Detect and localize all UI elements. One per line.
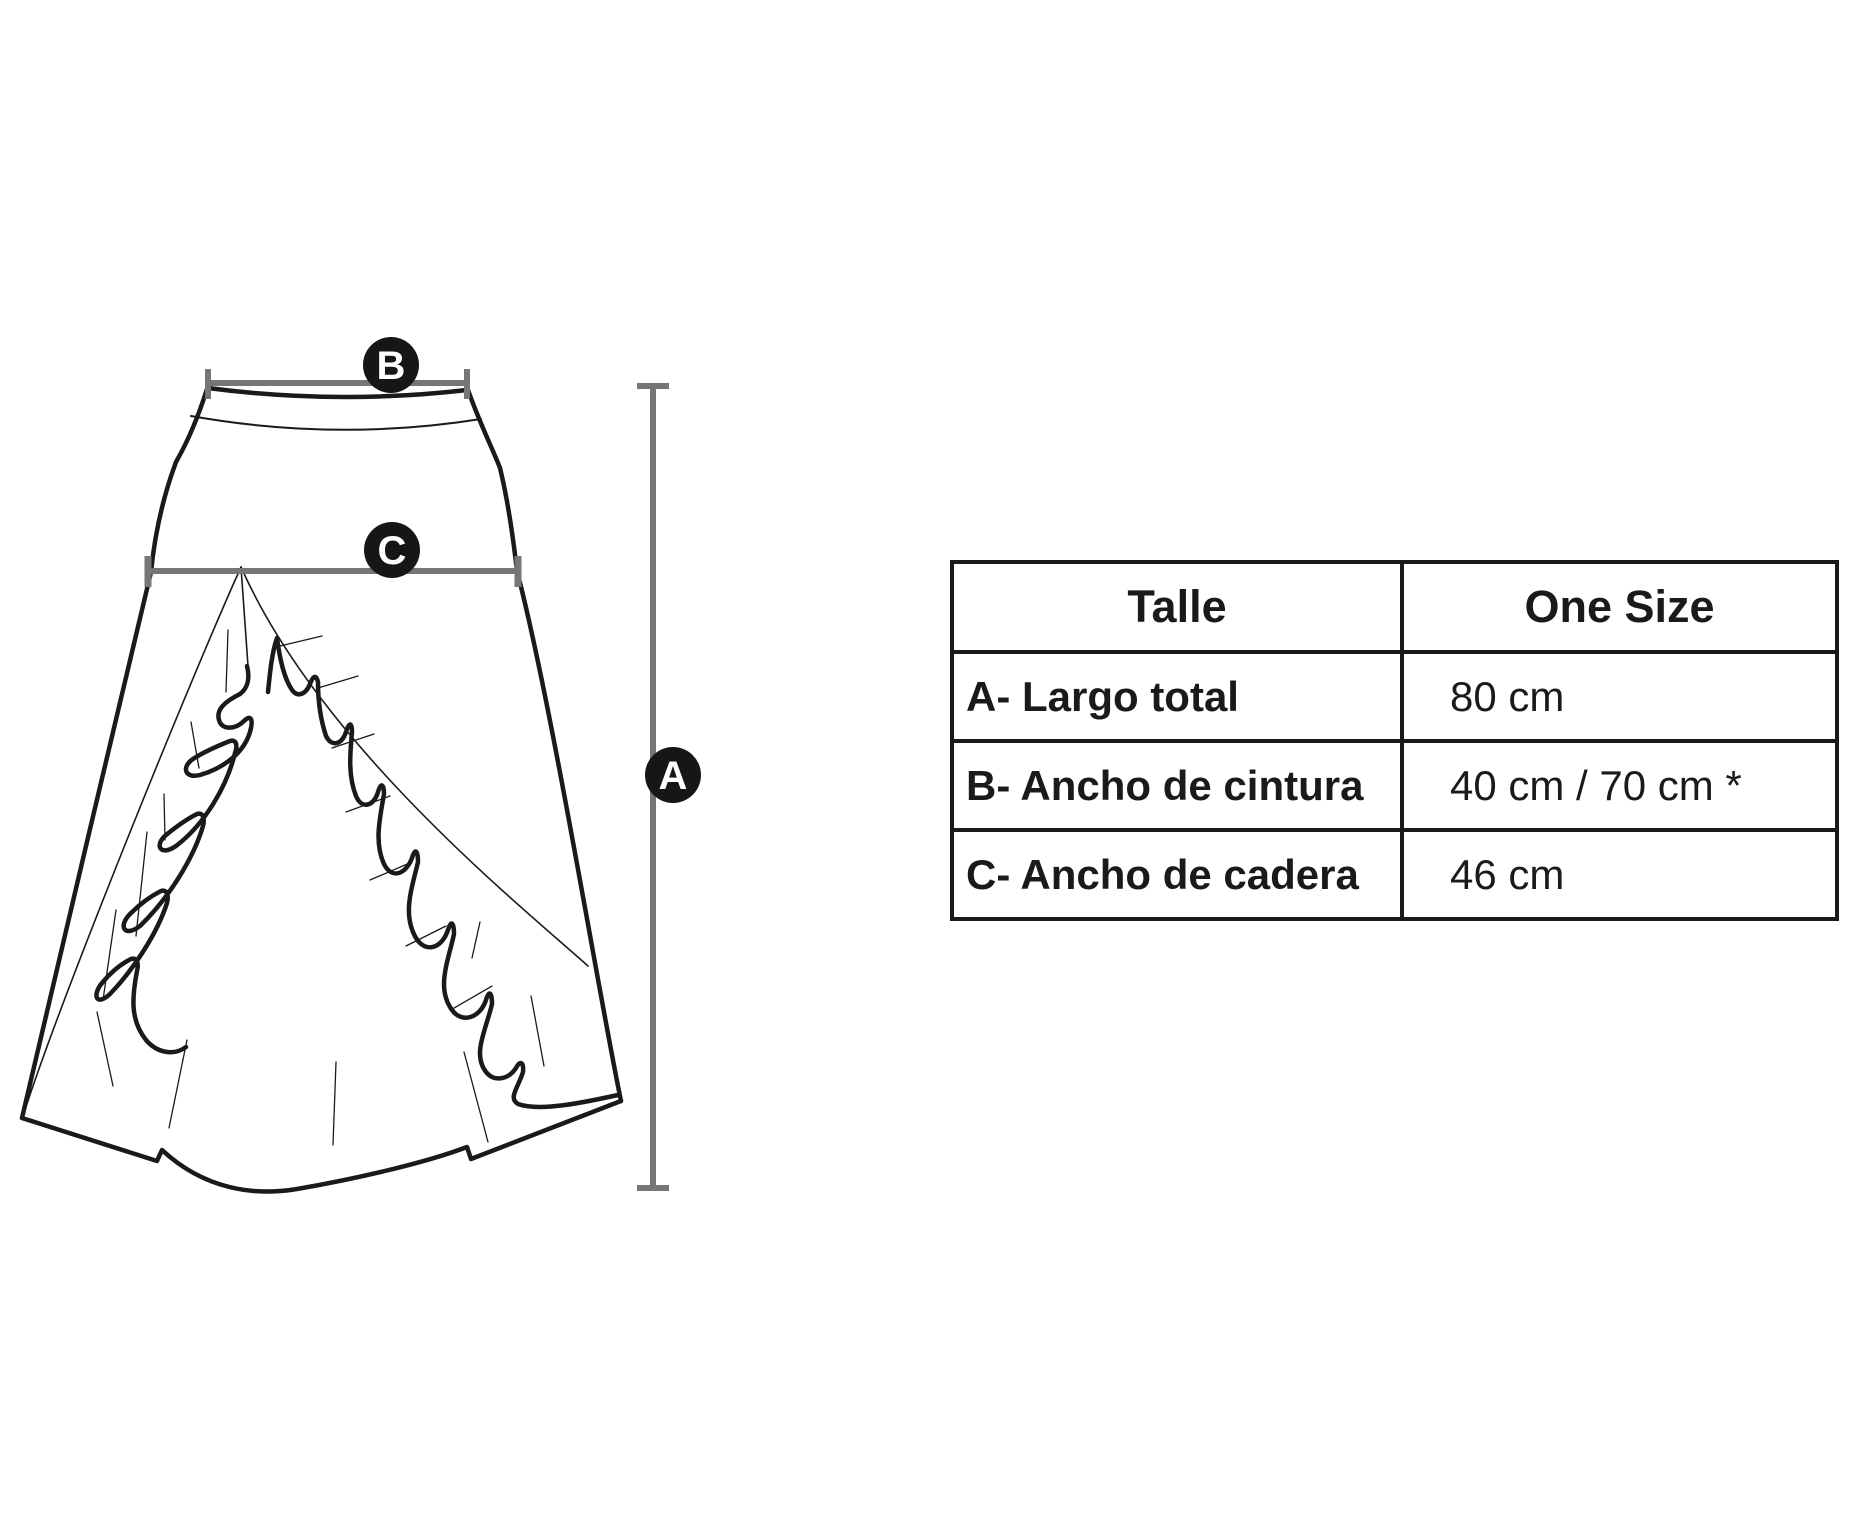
- size-table-header-one-size: One Size: [1402, 562, 1837, 652]
- left-side-seam: [22, 389, 207, 1118]
- row-label-largo-total: A- Largo total: [952, 652, 1402, 741]
- waistband-seam-line: [191, 416, 481, 430]
- badge-a-letter: A: [659, 754, 688, 798]
- row-label-ancho-cintura: B- Ancho de cintura: [952, 741, 1402, 830]
- table-row-largo-total: A- Largo total 80 cm: [952, 652, 1837, 741]
- waistband-top-edge: [208, 388, 467, 397]
- wrap-edge-right: [241, 567, 588, 966]
- size-table-header-talle: Talle: [952, 562, 1402, 652]
- row-value-largo-total: 80 cm: [1402, 652, 1837, 741]
- hem-line: [22, 1101, 621, 1192]
- table-row-ancho-cintura: B- Ancho de cintura 40 cm / 70 cm *: [952, 741, 1837, 830]
- row-value-ancho-cadera: 46 cm: [1402, 830, 1837, 919]
- badge-c-letter: C: [378, 529, 407, 573]
- badge-a: A: [645, 747, 701, 803]
- badge-c: C: [364, 522, 420, 578]
- size-table: Talle One Size A- Largo total 80 cm B- A…: [950, 560, 1839, 921]
- table-row-ancho-cadera: C- Ancho de cadera 46 cm: [952, 830, 1837, 919]
- row-label-ancho-cadera: C- Ancho de cadera: [952, 830, 1402, 919]
- size-guide-page: B C A Talle One Size A- Largo to: [0, 0, 1858, 1527]
- skirt-sketch: [22, 388, 621, 1192]
- badge-b-letter: B: [377, 344, 406, 388]
- wrap-apex-drop-line: [241, 567, 248, 666]
- measure-line-c: [148, 556, 518, 587]
- row-value-ancho-cintura: 40 cm / 70 cm *: [1402, 741, 1837, 830]
- size-table-header-row: Talle One Size: [952, 562, 1837, 652]
- ruffle-right: [268, 638, 618, 1107]
- badge-b: B: [363, 337, 419, 393]
